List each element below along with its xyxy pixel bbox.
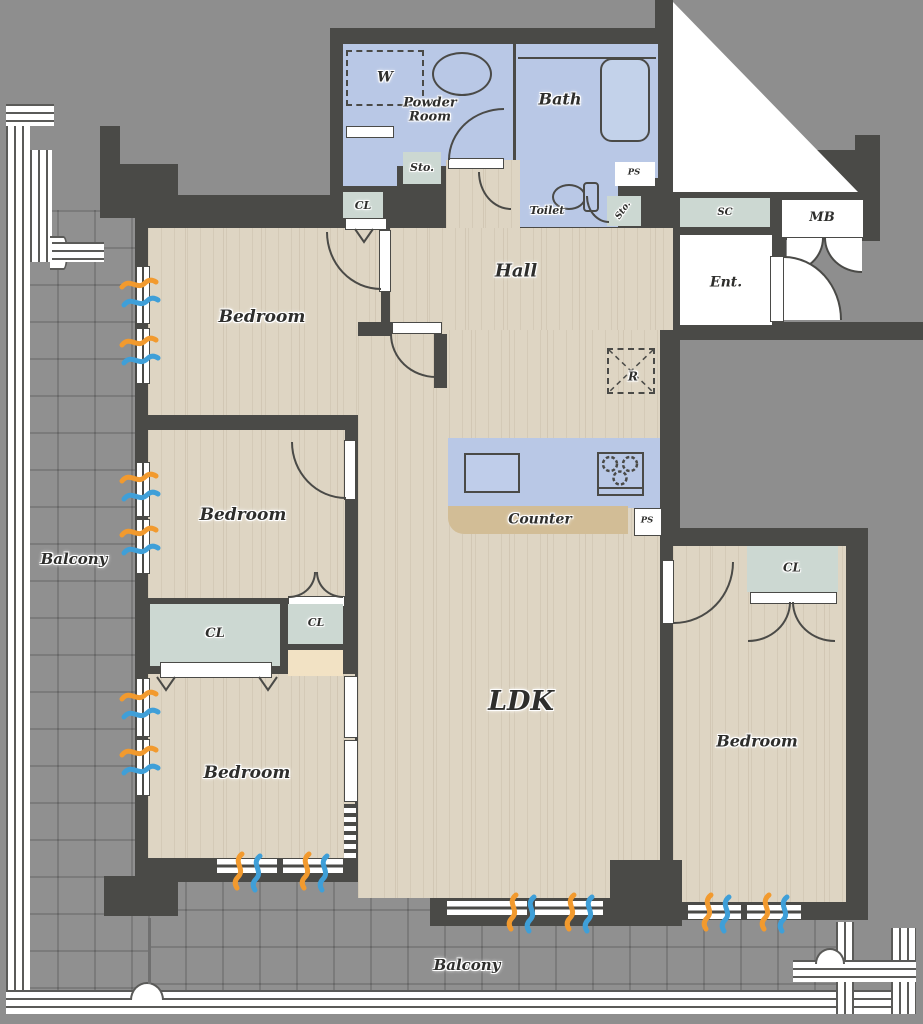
window-bedroom3-d: [282, 858, 344, 874]
door-leaf-bedroom4: [662, 560, 674, 624]
airflow-warm-icon: [700, 893, 715, 931]
wall-hall-ldk: [358, 322, 392, 336]
wall-ldk-right: [660, 330, 680, 540]
label-closet-small: CL: [308, 617, 325, 629]
airflow-warm-icon: [563, 893, 578, 931]
airflow-cool-icon: [523, 895, 538, 933]
chevron-closet-top-icon: [354, 228, 374, 244]
wall-top-stub: [655, 0, 673, 30]
sliding-panel-track: [344, 804, 356, 860]
powder-shelf: [346, 126, 394, 138]
entrance-door-leaf: [770, 256, 784, 322]
airflow-cool-icon: [316, 854, 331, 892]
label-closet-bedroom4: CL: [783, 562, 801, 575]
airflow-warm-icon: [120, 524, 158, 539]
airflow-cool-icon: [581, 895, 596, 933]
label-refrigerator: R: [628, 371, 638, 384]
stove-icon: [597, 452, 644, 496]
label-ldk: LDK: [488, 688, 554, 716]
mb-door-arc-right: [824, 238, 862, 273]
label-washer: W: [377, 71, 393, 86]
cut-corner-triangle: [673, 2, 858, 192]
label-counter: Counter: [508, 513, 572, 528]
sink-basin: [432, 52, 492, 96]
airflow-warm-icon: [298, 852, 313, 890]
airflow-cool-icon: [249, 854, 264, 892]
airflow-cool-icon: [122, 762, 160, 777]
airflow-warm-icon: [120, 276, 158, 291]
label-ps-kitchen: PS: [641, 517, 654, 526]
wall-block-bottom-mid: [610, 860, 682, 924]
floor-ldk: [358, 330, 660, 898]
label-closet-top: CL: [355, 200, 372, 212]
airflow-cool-icon: [122, 706, 160, 721]
door-leaf-hall-ldk: [392, 322, 442, 334]
airflow-warm-icon: [231, 852, 246, 890]
airflow-warm-icon: [120, 688, 158, 703]
label-powder-room: Powder Room: [403, 96, 457, 123]
label-bedroom-4: Bedroom: [716, 734, 798, 751]
airflow-warm-icon: [120, 470, 158, 485]
floor-plan: W Powder Room Bath Sto. CL Toilet PS Sto…: [0, 0, 923, 1024]
chevron-closet-big-right-icon: [258, 676, 278, 692]
label-bath: Bath: [539, 92, 582, 109]
label-meter-box: MB: [809, 211, 834, 225]
kitchen-sink: [464, 453, 520, 493]
entrance-door-arc: [784, 256, 842, 320]
sliding-panel-b: [344, 740, 358, 802]
cabinet-box: [288, 650, 343, 676]
window-bedroom3-c: [216, 858, 278, 874]
closet-big-shelf: [160, 662, 272, 678]
balcony-rail-inner-bottom: [793, 960, 916, 982]
label-storage-top: Sto.: [410, 162, 434, 174]
airflow-cool-icon: [122, 352, 160, 367]
chevron-closet-big-left-icon: [156, 676, 176, 692]
label-ps-top: PS: [628, 169, 641, 178]
airflow-warm-icon: [758, 893, 773, 931]
airflow-cool-icon: [776, 895, 791, 933]
label-closet-big: CL: [205, 627, 225, 641]
label-bedroom-1: Bedroom: [219, 309, 306, 327]
label-bedroom-2: Bedroom: [200, 507, 287, 525]
airflow-cool-icon: [122, 294, 160, 309]
wall-bottomleft-stub: [104, 876, 178, 916]
sliding-panel-a: [344, 676, 358, 738]
balcony-rail-left: [6, 104, 30, 1014]
balcony-left-tiles: [20, 210, 148, 992]
bathtub: [600, 58, 650, 142]
airflow-warm-icon: [120, 334, 158, 349]
airflow-warm-icon: [120, 744, 158, 759]
balcony-partition-band-top: [52, 242, 104, 262]
airflow-cool-icon: [122, 542, 160, 557]
label-bedroom-3: Bedroom: [204, 765, 291, 783]
label-toilet: Toilet: [530, 205, 565, 217]
label-balcony-left: Balcony: [41, 552, 108, 568]
airflow-cool-icon: [718, 895, 733, 933]
room-powder-lower: [343, 136, 397, 186]
window-bedroom4-b: [746, 904, 802, 920]
balcony-rail-step: [30, 150, 52, 262]
balcony-rail-top-cap: [6, 104, 54, 126]
wall-topleft-stub-b: [114, 164, 178, 218]
label-hall: Hall: [495, 263, 537, 282]
airflow-cool-icon: [122, 488, 160, 503]
label-entrance: Ent.: [710, 276, 742, 291]
airflow-warm-icon: [505, 893, 520, 931]
label-shoe-closet: SC: [717, 208, 732, 219]
label-balcony-bottom: Balcony: [434, 958, 501, 974]
balcony-divider-line: [148, 918, 151, 984]
